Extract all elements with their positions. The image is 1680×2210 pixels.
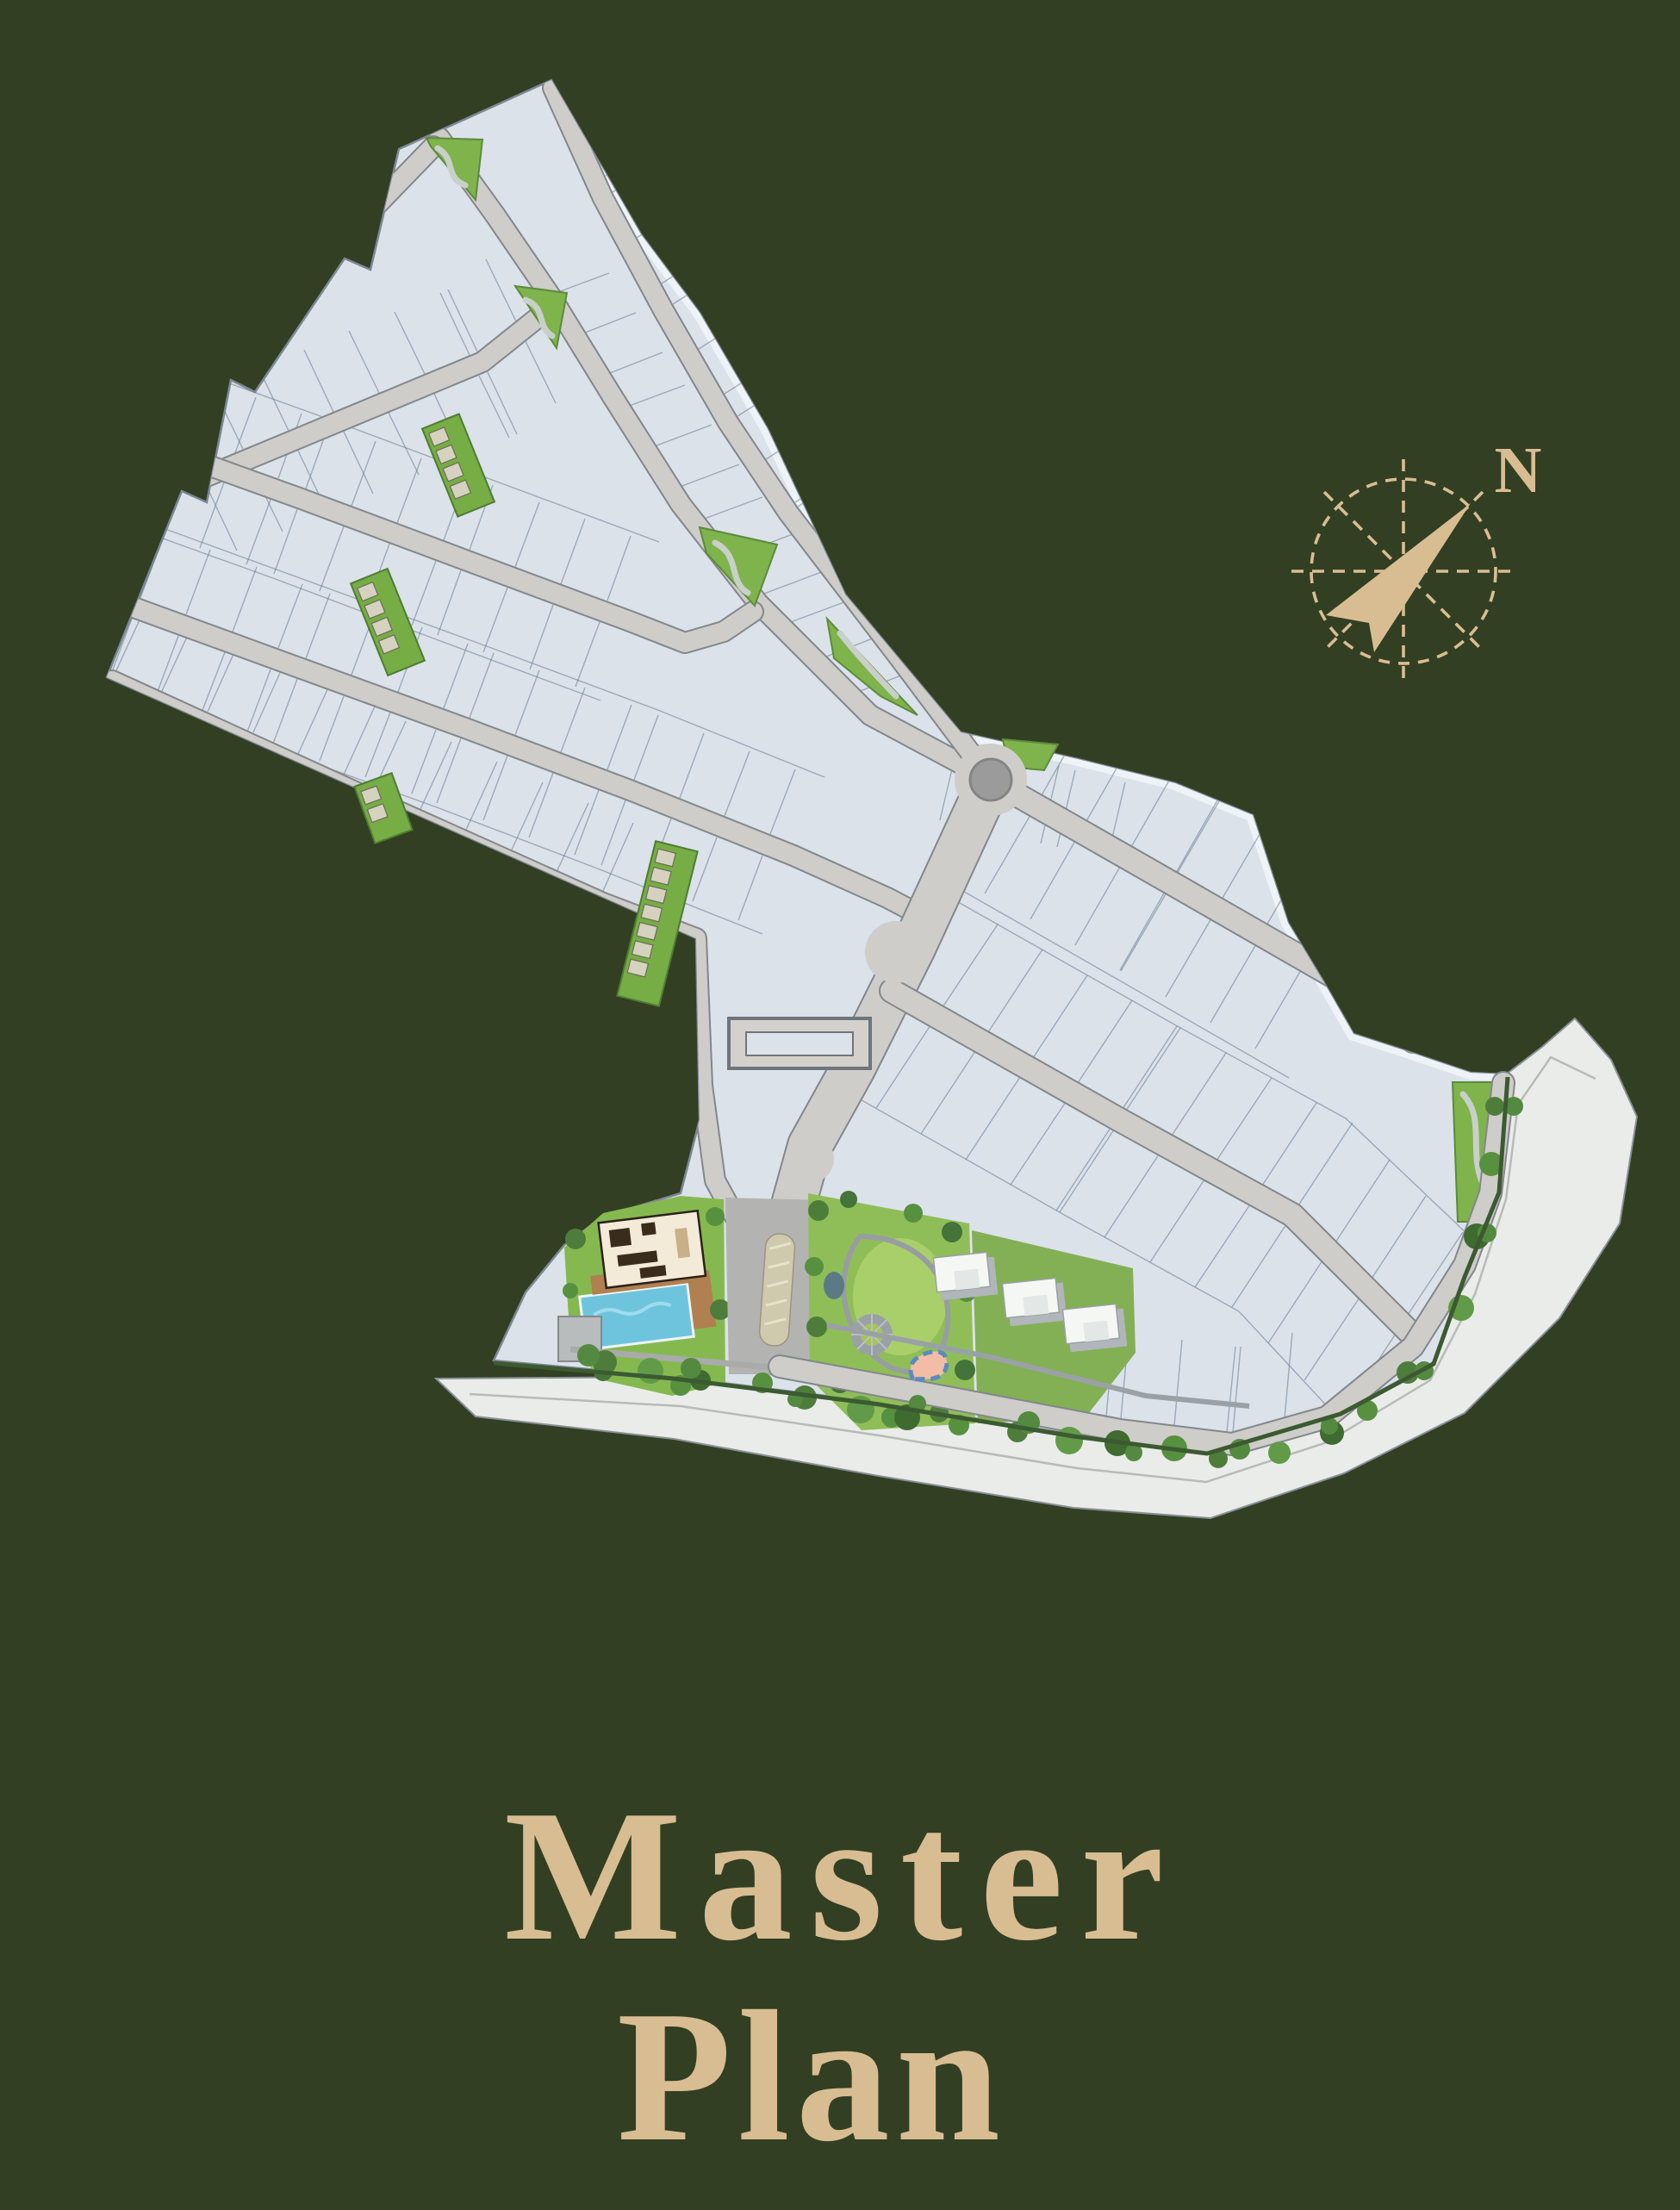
svg-text:Plan: Plan: [617, 1973, 1006, 2181]
svg-text:N: N: [1495, 434, 1542, 507]
svg-text:Master: Master: [504, 1772, 1181, 1980]
